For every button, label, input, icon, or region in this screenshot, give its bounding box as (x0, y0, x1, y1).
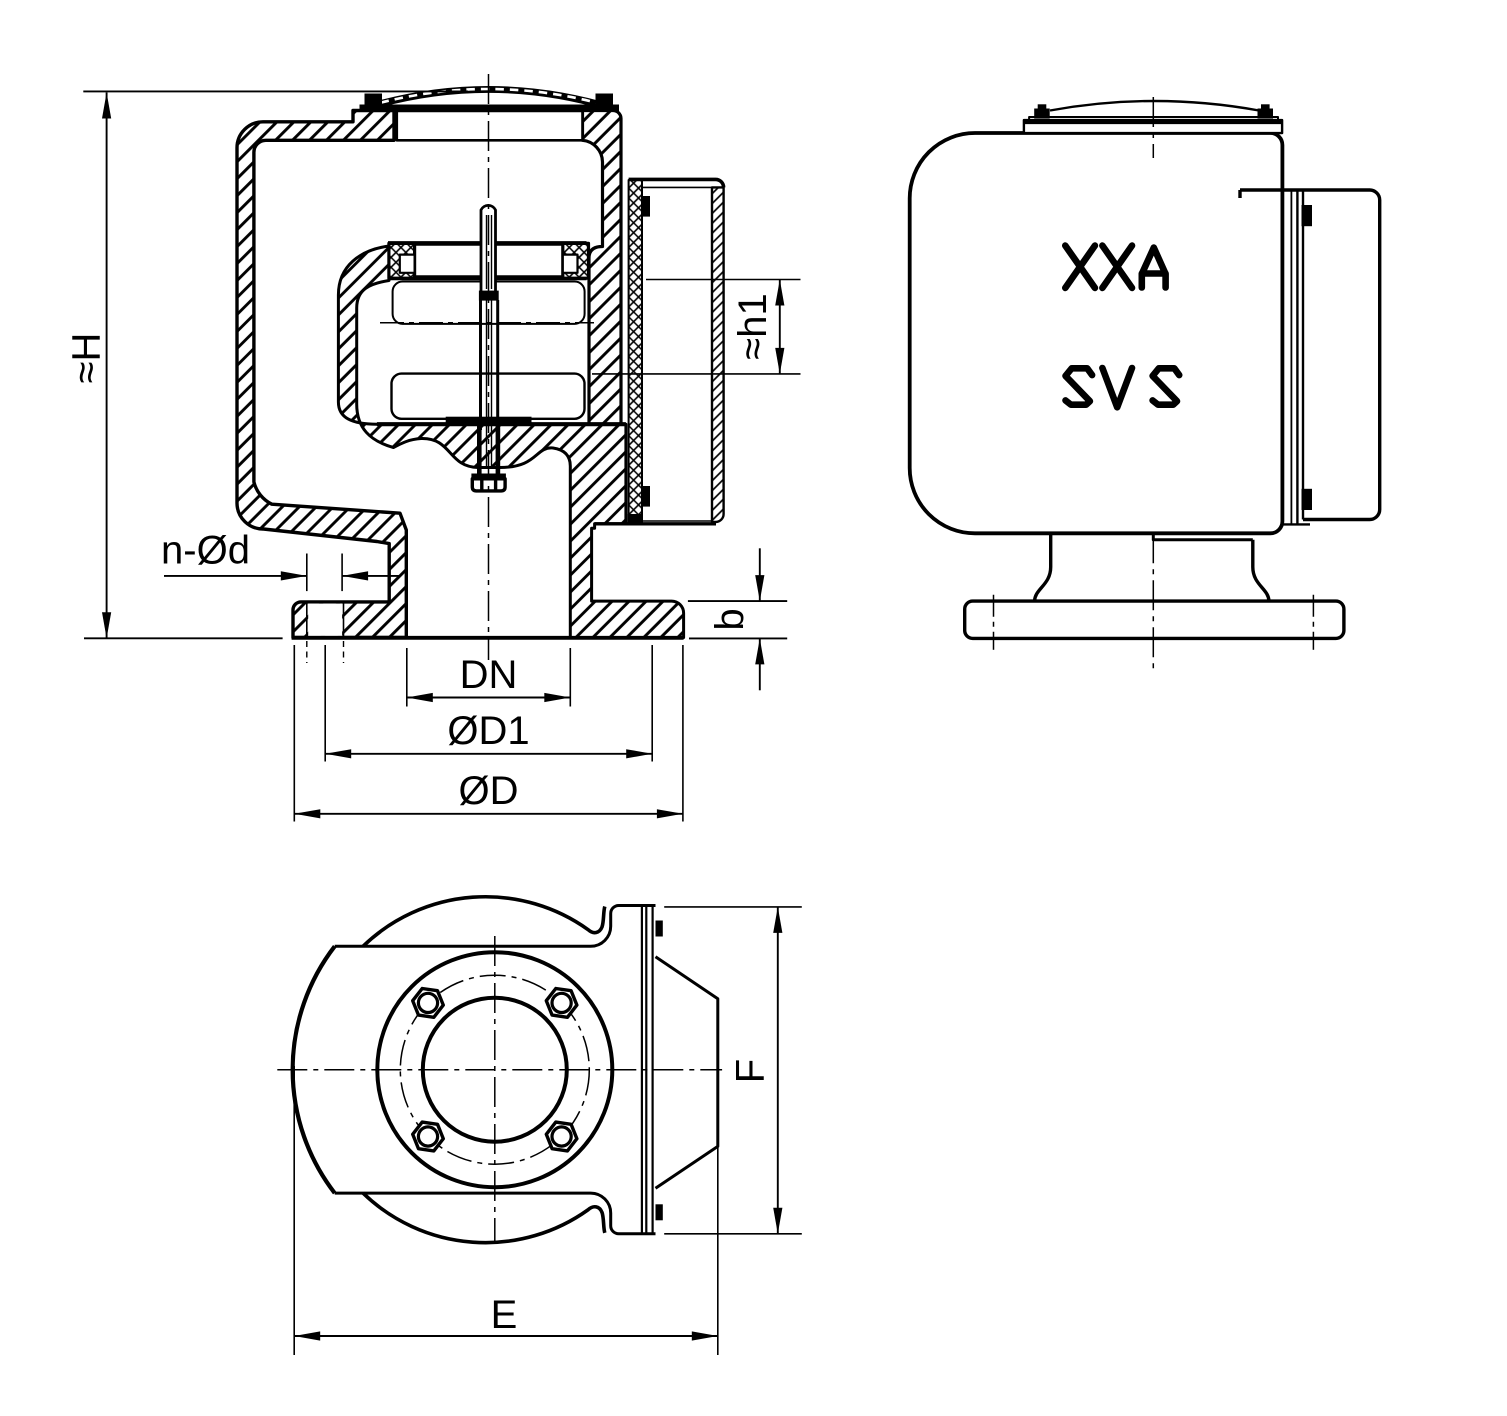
svg-text:ØD1: ØD1 (447, 709, 529, 753)
svg-text:E: E (491, 1293, 518, 1337)
svg-text:F: F (729, 1059, 773, 1083)
svg-text:≈H: ≈H (65, 333, 109, 384)
svg-text:n-Ød: n-Ød (161, 529, 250, 573)
svg-text:≈h1: ≈h1 (731, 293, 775, 359)
svg-text:DN: DN (460, 653, 518, 697)
svg-text:b: b (708, 608, 752, 630)
svg-text:ØD: ØD (459, 769, 519, 813)
